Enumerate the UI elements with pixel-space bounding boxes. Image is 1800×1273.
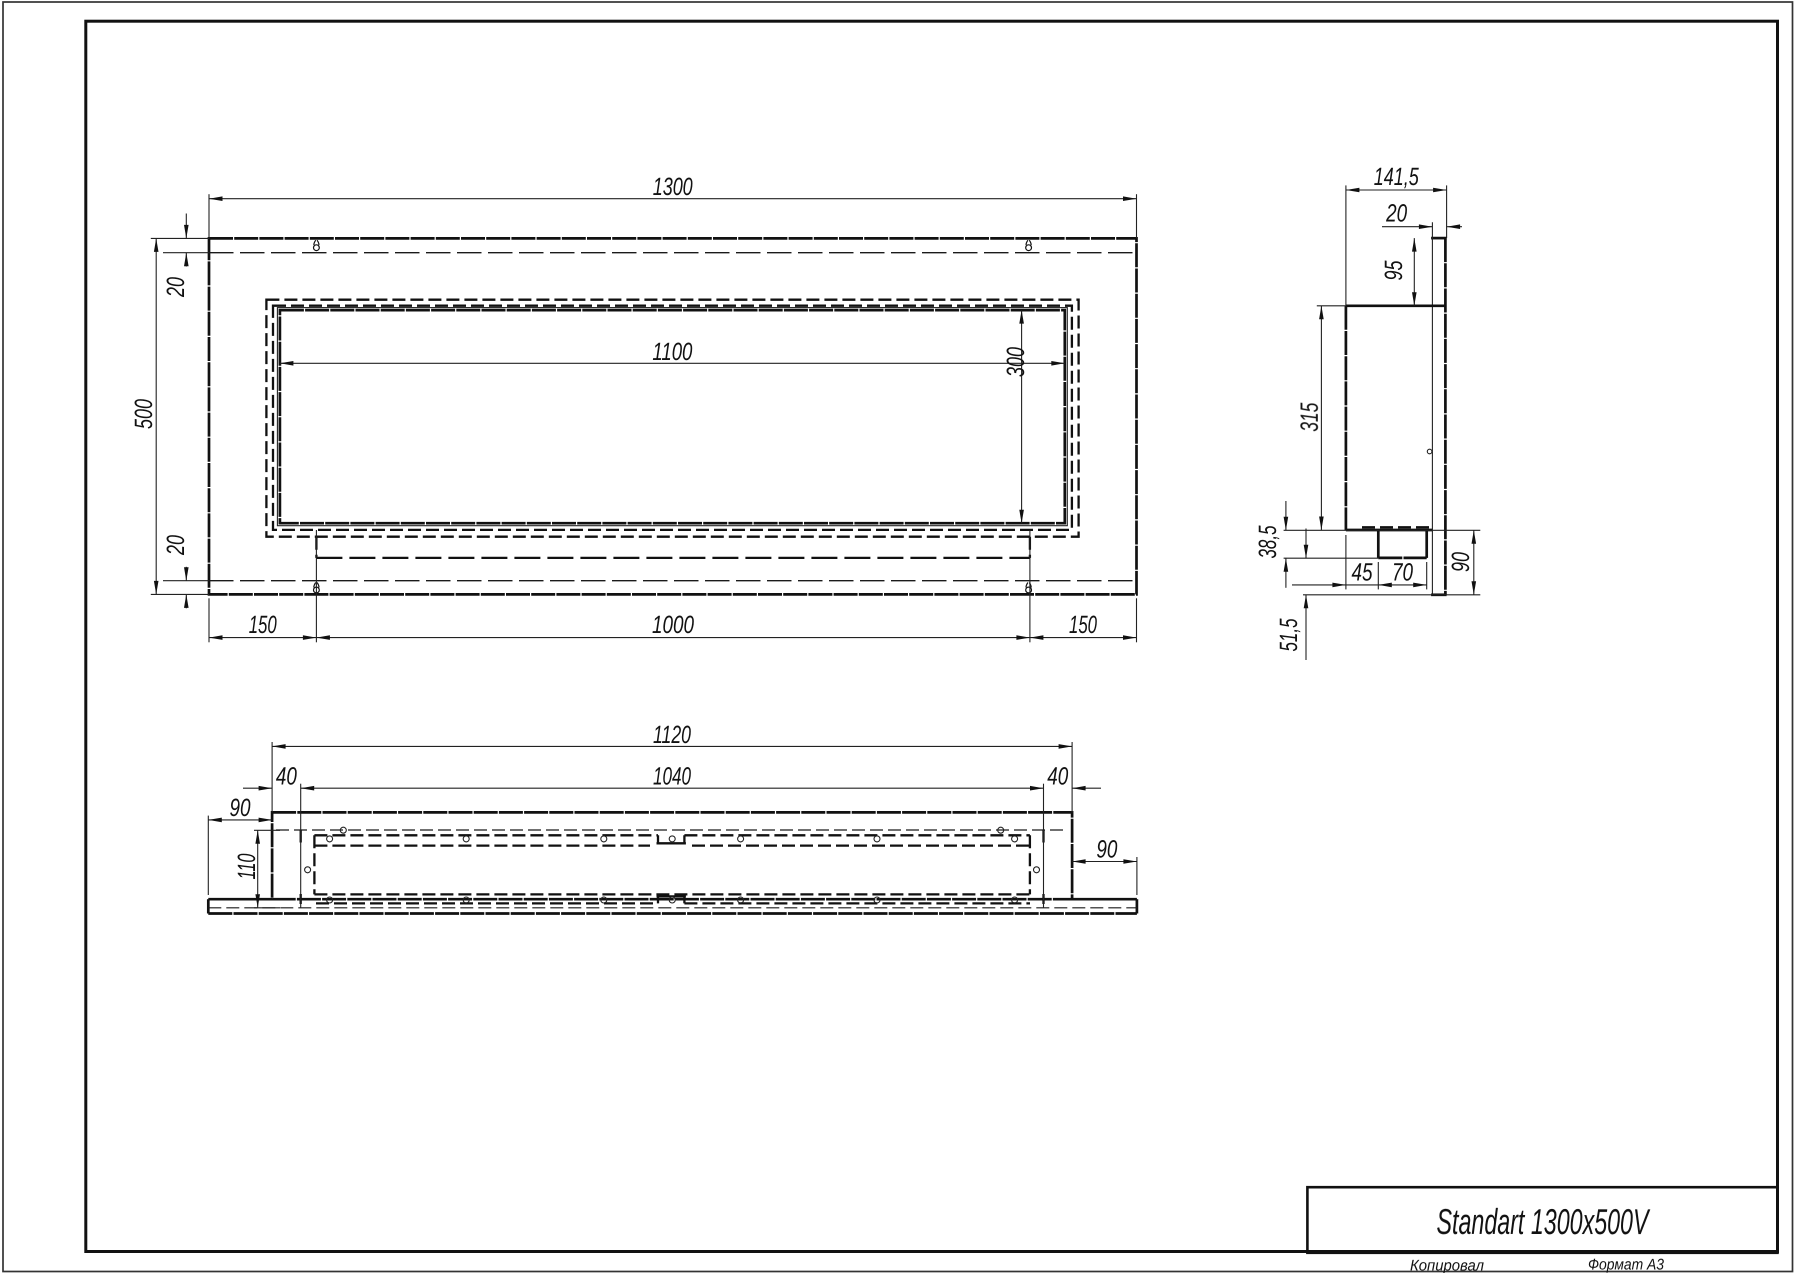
svg-text:110: 110 (233, 853, 261, 879)
svg-text:1300: 1300 (653, 173, 693, 201)
svg-text:1040: 1040 (653, 763, 691, 791)
svg-text:45: 45 (1351, 558, 1372, 586)
svg-text:Standart 1300x500V: Standart 1300x500V (1436, 1201, 1650, 1242)
svg-text:1000: 1000 (652, 611, 694, 639)
svg-text:90: 90 (1096, 835, 1117, 863)
svg-text:315: 315 (1296, 403, 1324, 432)
svg-text:95: 95 (1380, 260, 1408, 280)
svg-text:Копировал: Копировал (1410, 1257, 1484, 1273)
svg-text:1120: 1120 (653, 721, 691, 749)
svg-text:150: 150 (1069, 611, 1097, 639)
svg-text:40: 40 (276, 763, 297, 791)
svg-text:300: 300 (1002, 347, 1030, 377)
svg-text:150: 150 (249, 611, 277, 639)
svg-text:500: 500 (130, 399, 158, 429)
svg-text:141,5: 141,5 (1374, 163, 1419, 191)
svg-text:70: 70 (1392, 558, 1413, 586)
svg-text:20: 20 (162, 277, 190, 298)
svg-text:Формат А3: Формат А3 (1588, 1256, 1664, 1273)
svg-text:20: 20 (1385, 199, 1407, 227)
svg-text:51,5: 51,5 (1275, 618, 1303, 651)
svg-text:40: 40 (1047, 763, 1068, 791)
svg-text:1100: 1100 (652, 338, 692, 366)
svg-text:20: 20 (162, 535, 190, 556)
svg-text:90: 90 (229, 794, 250, 822)
svg-text:90: 90 (1447, 552, 1475, 572)
svg-text:38,5: 38,5 (1254, 525, 1282, 558)
